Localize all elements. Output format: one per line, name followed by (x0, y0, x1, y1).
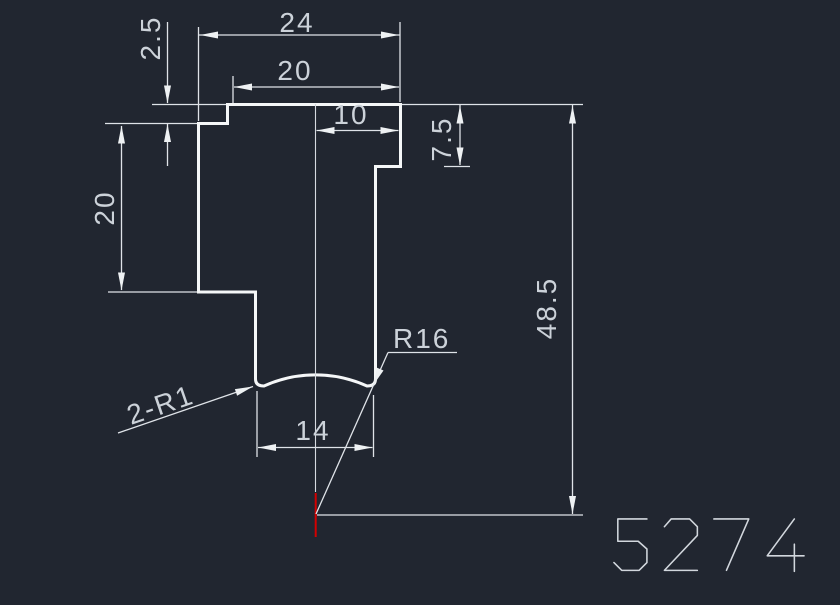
dim-label-top-width: 20 (277, 55, 312, 86)
arrowhead-left (317, 127, 335, 134)
dim-label-center-to-right: 10 (333, 99, 368, 130)
dim-label-right-step-depth: 7.5 (426, 117, 457, 162)
arrowhead-up (118, 126, 125, 144)
arrowhead-down (457, 148, 464, 166)
dim-label-fillet-radius: 2-R1 (123, 379, 198, 431)
arrowhead-up (457, 106, 464, 124)
dim-label-left-height: 20 (89, 190, 120, 225)
arrowhead-left (234, 84, 252, 91)
dim-label-arc-radius: R16 (393, 323, 450, 354)
arrowhead-down (164, 86, 171, 104)
arrowhead-up (569, 106, 576, 124)
digit-2 (664, 519, 697, 570)
arrowhead-left (258, 444, 276, 451)
dim-fillet-radius: 2-R1 (118, 379, 253, 433)
dim-left-height: 20 (89, 126, 197, 293)
arrowhead-right (381, 127, 399, 134)
dim-label-slot-width: 14 (295, 415, 330, 446)
dim-label-overall-width: 24 (279, 7, 314, 38)
dim-right-step-depth: 7.5 (426, 105, 470, 167)
digit-7 (714, 519, 749, 570)
arrowhead-right (381, 32, 399, 39)
arrowhead-down (569, 496, 576, 514)
digit-5 (614, 519, 647, 570)
arrowhead-right (381, 84, 399, 91)
part-outline (199, 105, 401, 387)
cad-drawing-svg: 24 20 2.5 20 10 7.5 (0, 0, 840, 600)
arrowhead-up (164, 124, 171, 142)
arrowhead-left (200, 32, 218, 39)
drawing-number: 5274 (614, 519, 804, 571)
dim-label-overall-height: 48.5 (531, 277, 562, 340)
arrowhead-right (355, 444, 373, 451)
cad-drawing-canvas: 24 20 2.5 20 10 7.5 (0, 0, 840, 600)
dim-top-width: 20 (233, 55, 399, 103)
dim-arc-radius: R16 (316, 323, 457, 514)
arrowhead (235, 387, 253, 396)
arrowhead-down (118, 273, 125, 291)
digit-4 (767, 519, 804, 571)
dim-label-step-height: 2.5 (135, 16, 166, 61)
